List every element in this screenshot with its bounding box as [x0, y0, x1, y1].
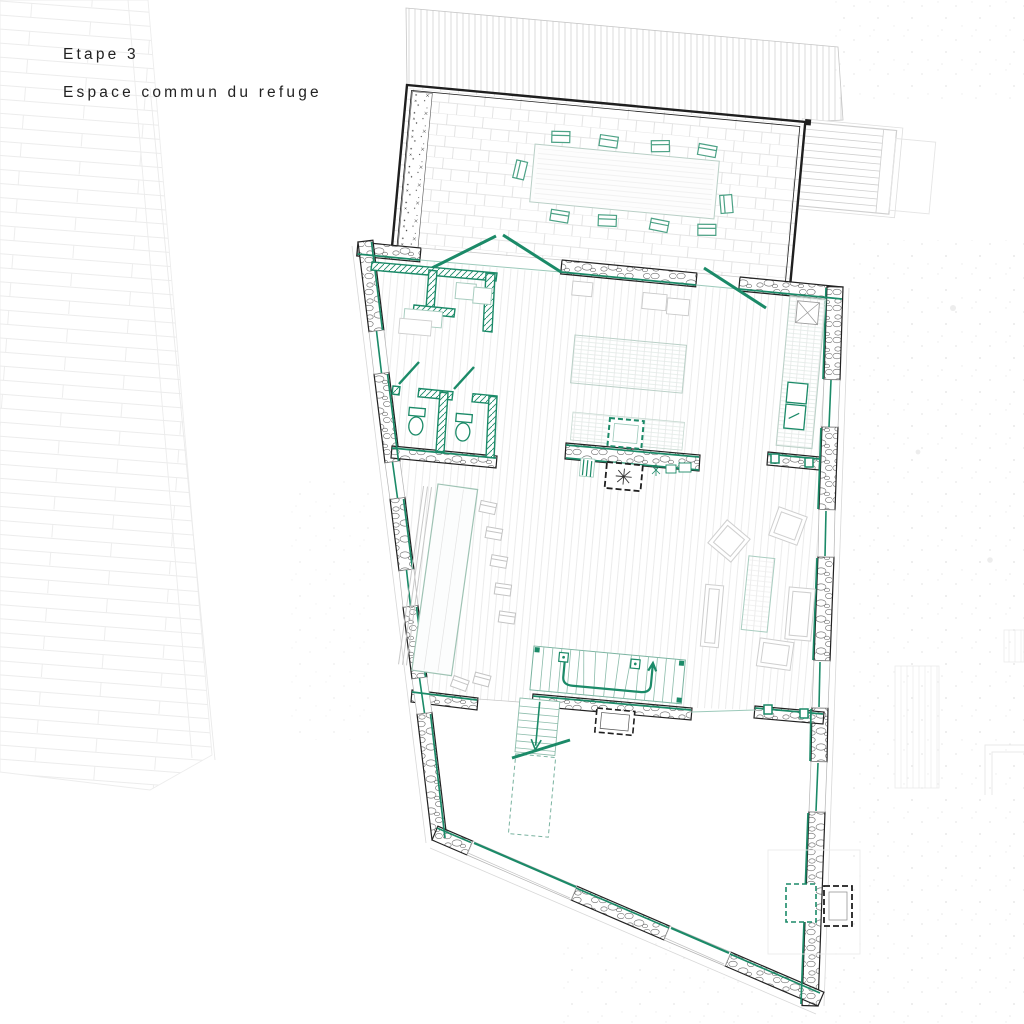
flue — [607, 418, 643, 449]
exterior-stair-upper — [794, 119, 937, 221]
space-label: Espace commun du refuge — [63, 74, 322, 112]
wood-stove — [605, 462, 643, 491]
building — [352, 235, 860, 1014]
plan-title: Etape 3 Espace commun du refuge — [63, 36, 322, 112]
masonry-chimney — [595, 708, 635, 735]
sink-basin-2 — [784, 404, 806, 430]
floor-plan-drawing — [0, 0, 1024, 1024]
background-left-roof — [0, 0, 215, 790]
stage-label: Etape 3 — [63, 36, 322, 74]
sofa-2 — [785, 587, 815, 641]
sofa-seat — [756, 638, 794, 670]
sink-basin-1 — [786, 382, 808, 404]
annex-teal-box — [786, 884, 816, 922]
floor-plan-page: Etape 3 Espace commun du refuge — [0, 0, 1024, 1024]
kitchen-island — [571, 335, 687, 393]
